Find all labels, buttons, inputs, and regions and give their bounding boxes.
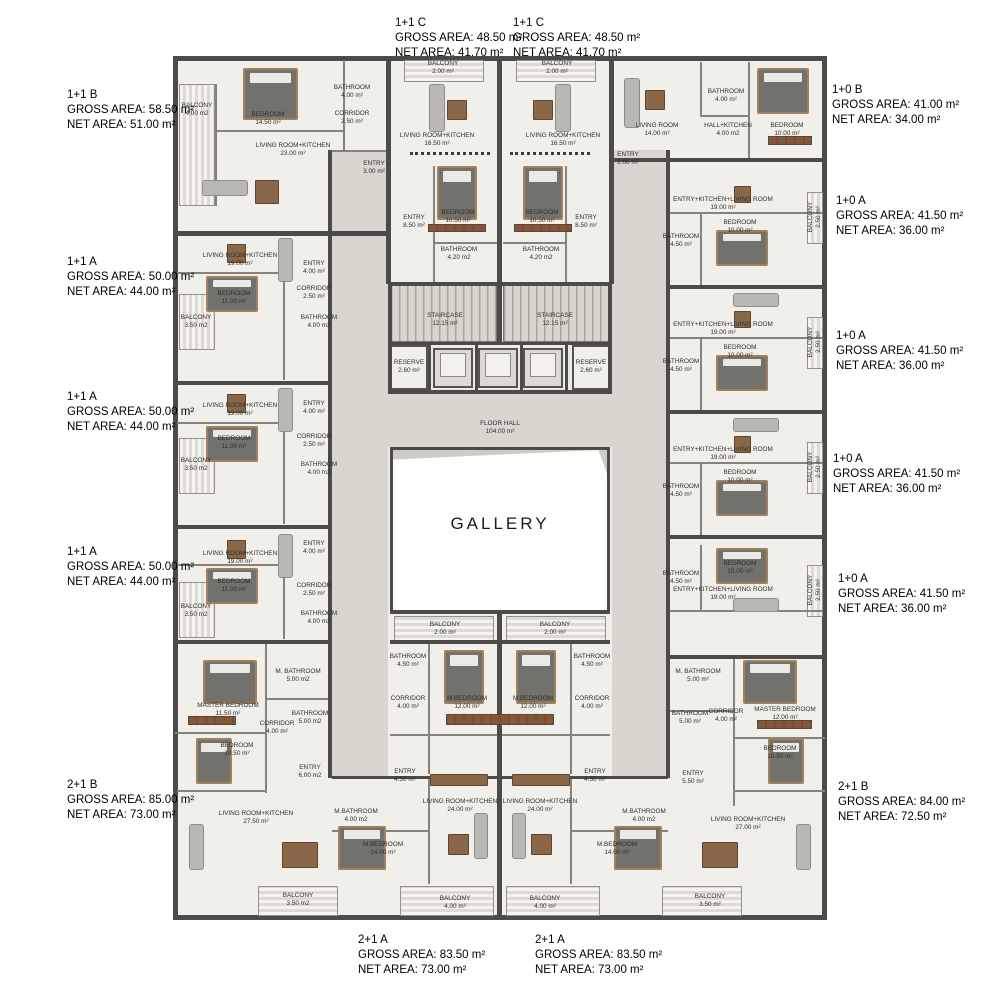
wall: [388, 282, 392, 394]
partition: [265, 643, 267, 793]
room-name: LIVING ROOM+KITCHEN: [203, 252, 277, 260]
room-label-bedroom: BEDROOM10.00 m²: [770, 122, 803, 138]
room-label-bathroom: BATHROOM4.20 m2: [523, 246, 559, 262]
room-area: 4.00 m2: [334, 816, 378, 824]
table-icon: [282, 842, 318, 868]
unit-label-1-0-a: 1+0 AGROSS AREA: 41.50 m²NET AREA: 36.00…: [836, 194, 963, 240]
room-name: CORRIDOR: [575, 695, 610, 703]
wall: [609, 58, 614, 284]
room-area: 2.00 m²: [428, 68, 459, 76]
room-area: 19.00 m²: [673, 594, 773, 602]
room-label-balcony: BALCONY4.00 m²: [530, 895, 561, 911]
unit-gross: GROSS AREA: 41.50 m²: [838, 587, 965, 602]
room-name: ENTRY: [584, 768, 606, 776]
room-area: 4.50 m²: [663, 578, 699, 586]
room-area: 4.00 m2: [622, 816, 666, 824]
wall: [390, 611, 610, 614]
room-label-m-bathroom: M. BATHROOM5.00 m²: [675, 668, 720, 684]
unit-label-1-1-a: 1+1 AGROSS AREA: 50.00 m²NET AREA: 44.00…: [67, 255, 194, 301]
unit-label: 2+1 A: [358, 933, 485, 948]
wall: [475, 344, 478, 392]
room-label-bathroom: BATHROOM4.50 m²: [574, 653, 610, 669]
room-area: 4.00 m²: [260, 728, 295, 736]
wall: [565, 344, 568, 392]
unit-label-2-1-b: 2+1 BGROSS AREA: 84.00 m²NET AREA: 72.50…: [838, 780, 965, 826]
room-area: 4.50 m²: [390, 661, 426, 669]
room-area: 12.00 m²: [754, 714, 815, 722]
room-name: BALCONY: [530, 895, 561, 903]
room-area: 10.50 m²: [441, 217, 474, 225]
unit-net: NET AREA: 73.00 m²: [535, 963, 662, 978]
ward-icon: [446, 714, 554, 725]
unit-label: 1+0 A: [833, 452, 960, 467]
dotted-line: [410, 152, 490, 155]
room-area: 19.00 m²: [203, 558, 277, 566]
room-name: LIVING ROOM+KITCHEN: [203, 550, 277, 558]
table-icon: [255, 180, 279, 204]
room-label-balcony: BALCONY2.50 m²: [807, 327, 823, 358]
unit-label: 1+1 A: [67, 545, 194, 560]
room-label-corridor: CORRIDOR4.00 m²: [709, 708, 744, 724]
room-name: HALL+KITCHEN: [704, 122, 752, 130]
room-label-bedroom: BEDROOM10.50 m²: [441, 209, 474, 225]
room-label-entry: ENTRY8.50 m²: [575, 214, 597, 230]
room-area: 10.00 m²: [770, 130, 803, 138]
room-name: CORRIDOR: [297, 285, 332, 293]
ward-icon: [428, 224, 486, 232]
room-name: FLOOR HALL: [480, 420, 520, 428]
partition: [733, 658, 735, 806]
room-area: 11.00 m²: [217, 443, 250, 451]
room-label-bathroom: BATHROOM4.00 m2: [301, 314, 337, 330]
wall: [175, 640, 332, 644]
sofa-icon: [278, 534, 293, 578]
room-area: 5.00 m²: [675, 676, 720, 684]
wall: [175, 381, 332, 385]
unit-net: NET AREA: 73.00 m²: [358, 963, 485, 978]
unit-label-2-1-a: 2+1 AGROSS AREA: 83.50 m²NET AREA: 73.00…: [358, 933, 485, 979]
room-name: ENTRY+KITCHEN+LIVING ROOM: [673, 446, 773, 454]
room-area: 3.50 m2: [181, 611, 212, 619]
room-label-bedroom: BEDROOM11.00 m²: [217, 435, 250, 451]
room-area: 2.00 m²: [617, 159, 639, 167]
room-name: BALCONY: [440, 895, 471, 903]
room-area: 10.00 m²: [723, 568, 756, 576]
room-label-bedroom: BEDROOM10.00 m²: [723, 560, 756, 576]
room-label-entry: ENTRY8.50 m²: [403, 214, 425, 230]
room-area: 12.00 m²: [447, 703, 487, 711]
room-area: 3.50 m2: [181, 465, 212, 473]
room-area: 10.00 m²: [723, 477, 756, 485]
room-area: 4.00 m²: [709, 716, 744, 724]
partition: [700, 212, 702, 285]
room-area: 16.50 m²: [400, 140, 474, 148]
unit-net: NET AREA: 36.00 m²: [838, 602, 965, 617]
room-area: 4.50 m²: [663, 241, 699, 249]
room-name: CORRIDOR: [260, 720, 295, 728]
partition: [700, 462, 702, 535]
room-area: 2.50 m²: [297, 441, 332, 449]
partition: [570, 644, 572, 774]
room-area: 2.50 m²: [815, 327, 823, 358]
wall: [428, 344, 431, 392]
room-label-balcony: BALCONY3.50 m²: [695, 893, 726, 909]
room-label-balcony: BALCONY3.50 m2: [181, 314, 212, 330]
room-name: BATHROOM: [301, 610, 337, 618]
room-area: 10.50 m²: [220, 750, 253, 758]
room-name: BATHROOM: [301, 461, 337, 469]
table-icon: [702, 842, 738, 868]
room-name: STAIRCASE: [427, 312, 463, 320]
room-name: LIVING ROOM+KITCHEN: [503, 798, 577, 806]
room-label-reserve: RESERVE2.60 m²: [394, 359, 424, 375]
room-area: 2.00 m²: [540, 629, 571, 637]
sofa-icon: [733, 418, 779, 432]
partition: [570, 778, 572, 884]
bed-icon: [757, 68, 809, 114]
corridor-right: [612, 150, 668, 778]
unit-gross: GROSS AREA: 50.00 m²: [67, 405, 194, 420]
room-area: 2.50 m²: [815, 452, 823, 483]
room-area: 19.00 m²: [203, 410, 277, 418]
room-label-staircase: STAIRCASE12.15 m²: [537, 312, 573, 328]
room-label-entry: ENTRY5.50 m²: [682, 770, 704, 786]
room-name: BEDROOM: [525, 209, 558, 217]
wall: [668, 535, 825, 539]
room-name: M.BATHROOM: [622, 808, 666, 816]
unit-label: 1+0 B: [832, 83, 959, 98]
room-area: 14.00 m²: [636, 130, 679, 138]
room-area: 19.00 m²: [673, 329, 773, 337]
room-name: BALCONY: [181, 603, 212, 611]
room-name: RESERVE: [576, 359, 606, 367]
room-name: M.BEDROOM: [513, 695, 553, 703]
room-label-entry-kitchen-living-room: ENTRY+KITCHEN+LIVING ROOM19.00 m²: [673, 586, 773, 602]
partition: [503, 242, 567, 244]
room-area: 4.00 m²: [530, 903, 561, 911]
room-name: BATHROOM: [301, 314, 337, 322]
sofa-icon: [202, 180, 248, 196]
room-name: BATHROOM: [672, 710, 708, 718]
room-name: BALCONY: [807, 452, 815, 483]
sofa-icon: [733, 293, 779, 307]
unit-label: 1+1 B: [67, 88, 194, 103]
room-area: 2.60 m²: [394, 367, 424, 375]
room-name: BEDROOM: [723, 469, 756, 477]
room-label-living-room-kitchen: LIVING ROOM+KITCHEN27.00 m²: [711, 816, 785, 832]
room-label-bathroom: BATHROOM4.50 m²: [663, 358, 699, 374]
room-label-bedroom: BEDROOM10.00 m²: [723, 219, 756, 235]
wall: [388, 390, 612, 394]
room-area: 14.00 m²: [597, 849, 637, 857]
room-label-master-bedroom: MASTER BEDROOM11.50 m²: [197, 702, 258, 718]
room-name: BEDROOM: [217, 435, 250, 443]
room-label-living-room-kitchen: LIVING ROOM+KITCHEN23.00 m²: [256, 142, 330, 158]
room-area: 12.00 m²: [513, 703, 553, 711]
room-name: ENTRY+KITCHEN+LIVING ROOM: [673, 321, 773, 329]
table-icon: [645, 90, 665, 110]
room-name: BATHROOM: [663, 233, 699, 241]
room-name: RESERVE: [394, 359, 424, 367]
sofa-icon: [512, 813, 526, 859]
sofa-icon: [474, 813, 488, 859]
unit-gross: GROSS AREA: 48.50 m²: [395, 31, 522, 46]
partition: [700, 62, 702, 117]
room-name: BATHROOM: [663, 483, 699, 491]
unit-net: NET AREA: 41.70 m²: [395, 46, 522, 61]
room-area: 19.00 m²: [673, 454, 773, 462]
room-name: BEDROOM: [770, 122, 803, 130]
room-label-corridor: CORRIDOR2.50 m²: [335, 110, 370, 126]
room-label-bathroom: BATHROOM4.50 m²: [663, 483, 699, 499]
room-name: MASTER BEDROOM: [197, 702, 258, 710]
room-label-balcony: BALCONY2.50 m²: [807, 202, 823, 233]
room-area: 2.60 m²: [576, 367, 606, 375]
room-area: 24.00 m²: [423, 806, 497, 814]
room-area: 2.00 m²: [542, 68, 573, 76]
wall: [497, 613, 502, 918]
partition: [748, 62, 750, 158]
room-name: BALCONY: [807, 575, 815, 606]
partition: [265, 698, 331, 700]
room-area: 4.00 m2: [301, 469, 337, 477]
room-label-entry-kitchen-living-room: ENTRY+KITCHEN+LIVING ROOM19.00 m²: [673, 196, 773, 212]
room-name: LIVING ROOM+KITCHEN: [203, 402, 277, 410]
room-area: 10.50 m²: [763, 753, 796, 761]
partition: [700, 115, 750, 117]
wall: [175, 525, 332, 529]
room-name: BEDROOM: [723, 219, 756, 227]
room-name: BALCONY: [807, 327, 815, 358]
room-area: 3.50 m2: [181, 322, 212, 330]
room-label-balcony: BALCONY4.00 m²: [440, 895, 471, 911]
room-label-bathroom: BATHROOM4.00 m²: [708, 88, 744, 104]
room-label-bathroom: BATHROOM4.00 m2: [301, 610, 337, 626]
room-label-reserve: RESERVE2.60 m²: [576, 359, 606, 375]
room-label-entry: ENTRY3.00 m²: [363, 160, 385, 176]
room-label-entry-kitchen-living-room: ENTRY+KITCHEN+LIVING ROOM19.00 m²: [673, 321, 773, 337]
room-label-bedroom: BEDROOM11.00 m²: [217, 290, 250, 306]
partition: [215, 130, 345, 132]
room-label-balcony: BALCONY3.50 m2: [181, 457, 212, 473]
unit-net: NET AREA: 36.00 m²: [836, 224, 963, 239]
room-label-balcony: BALCONY2.50 m²: [807, 452, 823, 483]
room-name: CORRIDOR: [335, 110, 370, 118]
table-icon: [512, 774, 570, 786]
room-name: CORRIDOR: [709, 708, 744, 716]
room-label-living-room-kitchen: LIVING ROOM+KITCHEN16.50 m²: [400, 132, 474, 148]
room-name: M.BEDROOM: [363, 841, 403, 849]
room-label-floor-hall: FLOOR HALL104.00 m²: [480, 420, 520, 436]
room-label-living-room-kitchen: LIVING ROOM+KITCHEN24.00 m²: [503, 798, 577, 814]
table-icon: [531, 834, 552, 855]
floor-plan: 1+1 CGROSS AREA: 48.50 m²NET AREA: 41.70…: [0, 0, 1000, 1000]
room-name: LIVING ROOM+KITCHEN: [526, 132, 600, 140]
room-label-m-bathroom: M. BATHROOM5.00 m2: [275, 668, 320, 684]
room-area: 5.50 m²: [682, 778, 704, 786]
room-label-corridor: CORRIDOR4.00 m²: [260, 720, 295, 736]
room-name: LIVING ROOM+KITCHEN: [219, 810, 293, 818]
unit-gross: GROSS AREA: 41.50 m²: [833, 467, 960, 482]
room-name: ENTRY: [394, 768, 416, 776]
room-area: 2.50 m²: [815, 202, 823, 233]
unit-label-1-0-a: 1+0 AGROSS AREA: 41.50 m²NET AREA: 36.00…: [836, 329, 963, 375]
room-area: 4.00 m²: [575, 703, 610, 711]
room-label-entry: ENTRY4.00 m²: [303, 540, 325, 556]
room-area: 23.00 m²: [256, 150, 330, 158]
ward-icon: [514, 224, 572, 232]
room-area: 4.00 m2: [301, 322, 337, 330]
dotted-line: [510, 152, 590, 155]
bed-icon: [743, 660, 797, 704]
unit-label: 2+1 B: [838, 780, 965, 795]
room-area: 14.50 m²: [251, 119, 284, 127]
room-name: M.BEDROOM: [447, 695, 487, 703]
unit-label: 1+1 A: [67, 255, 194, 270]
elevator: [478, 348, 518, 388]
sofa-icon: [429, 84, 445, 132]
sofa-icon: [555, 84, 571, 132]
room-name: BALCONY: [181, 457, 212, 465]
room-label-entry-kitchen-living-room: ENTRY+KITCHEN+LIVING ROOM19.00 m²: [673, 446, 773, 462]
unit-gross: GROSS AREA: 50.00 m²: [67, 560, 194, 575]
room-label-living-room: LIVING ROOM14.00 m²: [636, 122, 679, 138]
room-area: 5.00 m²: [672, 718, 708, 726]
room-area: 11.00 m²: [217, 586, 250, 594]
room-label-bathroom: BATHROOM4.50 m²: [663, 570, 699, 586]
unit-gross: GROSS AREA: 58.50 m²: [67, 103, 194, 118]
wall: [332, 776, 668, 779]
room-label-entry: ENTRY4.00 m²: [303, 260, 325, 276]
room-area: 6.00 m2: [298, 772, 321, 780]
room-name: LIVING ROOM+KITCHEN: [256, 142, 330, 150]
room-label-bedroom: BEDROOM10.50 m²: [220, 742, 253, 758]
room-name: M.BEDROOM: [597, 841, 637, 849]
unit-net: NET AREA: 51.00 m²: [67, 118, 194, 133]
partition: [343, 60, 345, 152]
room-area: 8.50 m²: [403, 222, 425, 230]
room-area: 19.00 m²: [203, 260, 277, 268]
room-label-entry: ENTRY4.50 m²: [394, 768, 416, 784]
unit-label: 2+1 A: [535, 933, 662, 948]
room-name: CORRIDOR: [391, 695, 426, 703]
unit-gross: GROSS AREA: 84.00 m²: [838, 795, 965, 810]
unit-label-1-1-c: 1+1 CGROSS AREA: 48.50 m²NET AREA: 41.70…: [513, 16, 640, 62]
room-area: 2.50 m²: [297, 293, 332, 301]
room-area: 4.00 m2: [704, 130, 752, 138]
wall: [497, 58, 502, 284]
room-area: 4.00 m²: [440, 903, 471, 911]
unit-label: 2+1 B: [67, 778, 194, 793]
unit-gross: GROSS AREA: 48.50 m²: [513, 31, 640, 46]
room-name: CORRIDOR: [297, 433, 332, 441]
room-name: LIVING ROOM+KITCHEN: [423, 798, 497, 806]
room-area: 11.00 m²: [217, 298, 250, 306]
room-name: BEDROOM: [251, 111, 284, 119]
table-icon: [430, 774, 488, 786]
partition: [428, 644, 430, 774]
unit-net: NET AREA: 41.70 m²: [513, 46, 640, 61]
room-name: ENTRY: [403, 214, 425, 222]
unit-gross: GROSS AREA: 85.00 m²: [67, 793, 194, 808]
wall: [390, 342, 610, 345]
unit-label: 1+0 A: [836, 329, 963, 344]
room-area: 12.15 m²: [537, 320, 573, 328]
table-icon: [447, 100, 467, 120]
room-label-bathroom: BATHROOM4.20 m2: [441, 246, 477, 262]
wall: [390, 640, 610, 644]
unit-label: 1+0 A: [836, 194, 963, 209]
bed-icon: [716, 480, 768, 516]
room-area: 5.00 m2: [275, 676, 320, 684]
unit-net: NET AREA: 72.50 m²: [838, 810, 965, 825]
room-name: LIVING ROOM+KITCHEN: [400, 132, 474, 140]
room-label-living-room-kitchen: LIVING ROOM+KITCHEN19.00 m²: [203, 402, 277, 418]
room-name: BATHROOM: [663, 358, 699, 366]
gallery-area: GALLERY: [390, 447, 610, 613]
room-area: 2.00 m²: [430, 629, 461, 637]
room-area: 4.00 m²: [303, 408, 325, 416]
partition: [733, 790, 825, 792]
wall: [668, 655, 825, 659]
room-label-hall-kitchen: HALL+KITCHEN4.00 m2: [704, 122, 752, 138]
room-name: BEDROOM: [763, 745, 796, 753]
room-name: BATHROOM: [390, 653, 426, 661]
room-label-living-room-kitchen: LIVING ROOM+KITCHEN27.50 m²: [219, 810, 293, 826]
partition: [332, 150, 388, 152]
partition: [175, 732, 267, 734]
table-icon: [533, 100, 553, 120]
room-area: 5.00 m2: [292, 718, 328, 726]
room-name: BATHROOM: [663, 570, 699, 578]
room-label-bedroom: BEDROOM11.00 m²: [217, 578, 250, 594]
room-label-living-room-kitchen: LIVING ROOM+KITCHEN16.50 m²: [526, 132, 600, 148]
wall: [668, 410, 825, 414]
room-label-m-bathroom: M.BATHROOM4.00 m2: [334, 808, 378, 824]
room-label-bedroom: BEDROOM10.50 m²: [763, 745, 796, 761]
unit-label: 1+0 A: [838, 572, 965, 587]
room-name: BEDROOM: [723, 560, 756, 568]
elevator: [433, 348, 473, 388]
sofa-icon: [624, 78, 640, 128]
room-name: BALCONY: [540, 621, 571, 629]
unit-label-1-1-b: 1+1 BGROSS AREA: 58.50 m²NET AREA: 51.00…: [67, 88, 194, 134]
room-label-bathroom: BATHROOM4.00 m2: [301, 461, 337, 477]
room-label-corridor: CORRIDOR2.50 m²: [297, 285, 332, 301]
room-name: ENTRY+KITCHEN+LIVING ROOM: [673, 586, 773, 594]
unit-gross: GROSS AREA: 83.50 m²: [535, 948, 662, 963]
room-label-bathroom: BATHROOM4.50 m²: [663, 233, 699, 249]
unit-label-1-0-b: 1+0 BGROSS AREA: 41.00 m²NET AREA: 34.00…: [832, 83, 959, 129]
room-label-balcony: BALCONY2.00 m²: [430, 621, 461, 637]
unit-label-1-1-a: 1+1 AGROSS AREA: 50.00 m²NET AREA: 44.00…: [67, 545, 194, 591]
room-area: 11.50 m²: [197, 710, 258, 718]
room-name: MASTER BEDROOM: [754, 706, 815, 714]
room-label-entry: ENTRY2.00 m²: [617, 151, 639, 167]
room-label-staircase: STAIRCASE12.15 m²: [427, 312, 463, 328]
room-name: ENTRY+KITCHEN+LIVING ROOM: [673, 196, 773, 204]
room-name: BALCONY: [695, 893, 726, 901]
room-name: ENTRY: [617, 151, 639, 159]
wall: [175, 231, 388, 236]
wall: [609, 158, 825, 162]
unit-label: 1+1 C: [395, 16, 522, 31]
room-name: BALCONY: [283, 892, 314, 900]
bed-icon: [716, 355, 768, 391]
room-area: 4.00 m²: [334, 92, 370, 100]
room-label-living-room-kitchen: LIVING ROOM+KITCHEN24.00 m²: [423, 798, 497, 814]
room-label-corridor: CORRIDOR4.00 m²: [575, 695, 610, 711]
